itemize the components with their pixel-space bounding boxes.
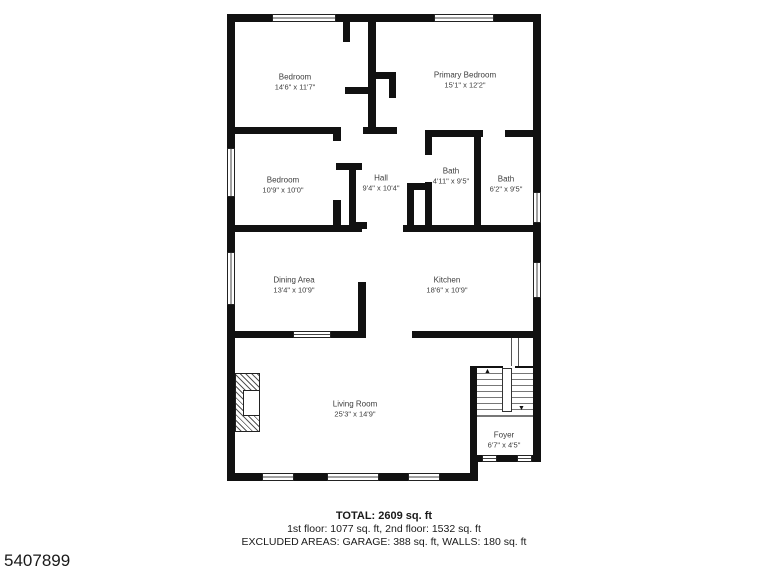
wall-dining-kitchen-divider bbox=[358, 282, 366, 338]
window bbox=[227, 148, 235, 197]
wall-bath1-left-lower bbox=[425, 182, 432, 232]
window bbox=[327, 473, 379, 481]
wall-closet-stub-top bbox=[343, 14, 350, 42]
room-name: Dining Area bbox=[273, 276, 314, 286]
wall-closet-stub-down bbox=[389, 79, 396, 98]
room-label-kitchen: Kitchen 18'6" x 10'9" bbox=[426, 276, 467, 295]
wall-foyer-step bbox=[470, 455, 478, 481]
window bbox=[533, 192, 541, 223]
stairs-down-icon: ▼ bbox=[518, 405, 525, 412]
room-dims: 13'4" x 10'9" bbox=[273, 286, 314, 295]
stairwell-opening bbox=[511, 338, 519, 366]
wall-bedroom-closet-divider bbox=[368, 14, 376, 134]
stairs-up-icon: ▲ bbox=[484, 368, 491, 375]
wall-outer-left bbox=[227, 14, 235, 481]
wall-living-top-right bbox=[412, 331, 541, 338]
room-dims: 10'9" x 10'0" bbox=[262, 186, 303, 195]
fireplace-firebox bbox=[243, 390, 260, 416]
wall-closet-stub-left bbox=[345, 87, 372, 94]
window bbox=[408, 473, 440, 481]
window bbox=[262, 473, 294, 481]
room-name: Bath bbox=[433, 167, 469, 177]
wall-bedroom2-right-lower bbox=[333, 200, 341, 232]
room-name: Bedroom bbox=[275, 73, 316, 83]
wall-hall-closet-left bbox=[407, 183, 414, 229]
wall-hall-bottom-stub bbox=[349, 222, 367, 229]
wall-bath1-left-upper bbox=[425, 131, 432, 155]
area-summary: TOTAL: 2609 sq. ft 1st floor: 1077 sq. f… bbox=[0, 510, 768, 549]
room-name: Foyer bbox=[488, 431, 521, 441]
room-label-living: Living Room 25'3" x 14'9" bbox=[333, 400, 377, 419]
room-dims: 6'2" x 9'5" bbox=[490, 185, 523, 194]
room-name: Hall bbox=[363, 174, 400, 184]
floor-areas: 1st floor: 1077 sq. ft, 2nd floor: 1532 … bbox=[0, 523, 768, 536]
wall-hall-left bbox=[349, 170, 356, 229]
wall-dining-top bbox=[227, 225, 362, 232]
room-dims: 6'7" x 4'5" bbox=[488, 441, 521, 450]
room-dims: 14'6" x 11'7" bbox=[275, 83, 316, 92]
room-label-bedroom-top: Bedroom 14'6" x 11'7" bbox=[275, 73, 316, 92]
room-label-bath-1: Bath 4'11" x 9'5" bbox=[433, 167, 469, 186]
room-dims: 18'6" x 10'9" bbox=[426, 286, 467, 295]
wall-bath2-top bbox=[505, 130, 541, 137]
room-dims: 9'4" x 10'4" bbox=[363, 184, 400, 193]
window-foyer-sidelight bbox=[517, 455, 532, 462]
wall-bedroom2-jog bbox=[336, 163, 362, 170]
room-name: Kitchen bbox=[426, 276, 467, 286]
wall-kitchen-top bbox=[403, 225, 541, 232]
window bbox=[293, 331, 331, 338]
total-area: TOTAL: 2609 sq. ft bbox=[0, 510, 768, 523]
wall-bedrooms-divider-left bbox=[227, 127, 338, 134]
room-dims: 25'3" x 14'9" bbox=[333, 410, 377, 419]
listing-id: 5407899 bbox=[4, 551, 70, 571]
room-label-bedroom-mid: Bedroom 10'9" x 10'0" bbox=[262, 176, 303, 195]
stair-railing bbox=[502, 368, 512, 412]
room-dims: 4'11" x 9'5" bbox=[433, 177, 469, 186]
wall-bedroom2-right-upper bbox=[333, 127, 341, 141]
floor-plan: ▲ ▼ Bedroom 14'6" x 11'7" Primary Bedroo… bbox=[0, 0, 768, 576]
room-dims: 15'1" x 12'2" bbox=[434, 81, 496, 90]
wall-outer-right bbox=[533, 14, 541, 462]
room-label-hall: Hall 9'4" x 10'4" bbox=[363, 174, 400, 193]
room-label-dining: Dining Area 13'4" x 10'9" bbox=[273, 276, 314, 295]
room-label-primary-bedroom: Primary Bedroom 15'1" x 12'2" bbox=[434, 71, 496, 90]
room-name: Bedroom bbox=[262, 176, 303, 186]
wall-living-stairs-divider bbox=[470, 366, 477, 455]
room-name: Living Room bbox=[333, 400, 377, 410]
wall-bath-divider bbox=[474, 131, 481, 232]
room-label-foyer: Foyer 6'7" x 4'5" bbox=[488, 431, 521, 450]
room-name: Bath bbox=[490, 175, 523, 185]
room-name: Primary Bedroom bbox=[434, 71, 496, 81]
room-label-bath-2: Bath 6'2" x 9'5" bbox=[490, 175, 523, 194]
window-foyer-sidelight bbox=[482, 455, 497, 462]
window bbox=[227, 252, 235, 305]
window bbox=[533, 262, 541, 298]
window bbox=[434, 14, 494, 22]
window bbox=[272, 14, 336, 22]
wall-closet-stub-right bbox=[376, 72, 396, 79]
excluded-areas: EXCLUDED AREAS: GARAGE: 388 sq. ft, WALL… bbox=[0, 536, 768, 549]
